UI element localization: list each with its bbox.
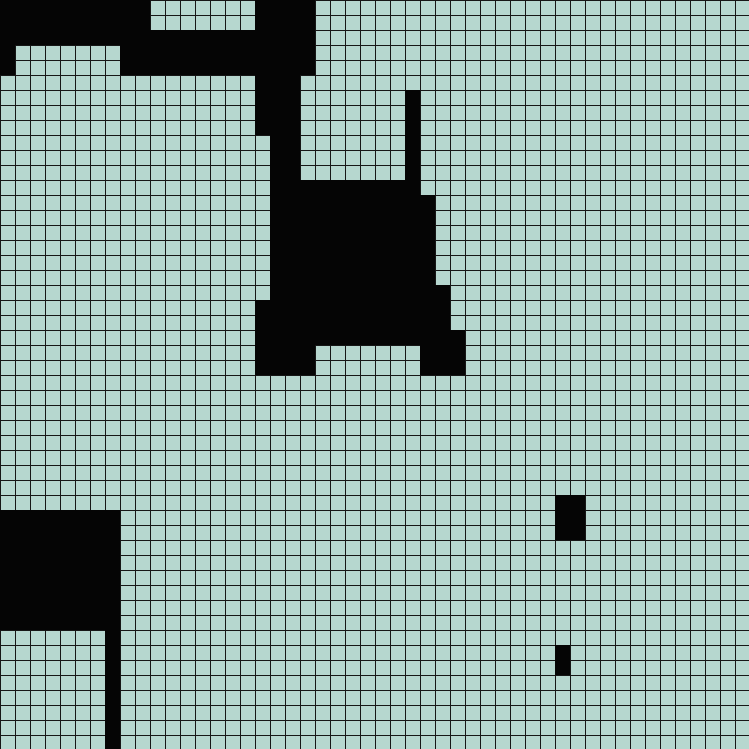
open-tile[interactable] — [540, 300, 555, 315]
filled-tile[interactable] — [0, 15, 15, 30]
open-tile[interactable] — [540, 720, 555, 735]
filled-tile[interactable] — [120, 15, 135, 30]
filled-tile[interactable] — [300, 240, 315, 255]
open-tile[interactable] — [255, 585, 270, 600]
open-tile[interactable] — [705, 360, 720, 375]
open-tile[interactable] — [345, 45, 360, 60]
open-tile[interactable] — [585, 360, 600, 375]
filled-tile[interactable] — [255, 345, 270, 360]
open-tile[interactable] — [435, 75, 450, 90]
open-tile[interactable] — [450, 210, 465, 225]
open-tile[interactable] — [675, 255, 690, 270]
open-tile[interactable] — [315, 15, 330, 30]
open-tile[interactable] — [735, 600, 749, 615]
open-tile[interactable] — [0, 330, 15, 345]
open-tile[interactable] — [210, 645, 225, 660]
open-tile[interactable] — [270, 525, 285, 540]
open-tile[interactable] — [225, 735, 240, 749]
open-tile[interactable] — [180, 495, 195, 510]
open-tile[interactable] — [270, 630, 285, 645]
open-tile[interactable] — [450, 720, 465, 735]
open-tile[interactable] — [45, 480, 60, 495]
open-tile[interactable] — [360, 345, 375, 360]
open-tile[interactable] — [120, 420, 135, 435]
open-tile[interactable] — [420, 615, 435, 630]
open-tile[interactable] — [60, 165, 75, 180]
open-tile[interactable] — [495, 615, 510, 630]
open-tile[interactable] — [465, 495, 480, 510]
open-tile[interactable] — [690, 735, 705, 749]
open-tile[interactable] — [660, 360, 675, 375]
open-tile[interactable] — [225, 525, 240, 540]
open-tile[interactable] — [330, 15, 345, 30]
open-tile[interactable] — [735, 720, 749, 735]
filled-tile[interactable] — [390, 300, 405, 315]
filled-tile[interactable] — [285, 150, 300, 165]
open-tile[interactable] — [570, 285, 585, 300]
open-tile[interactable] — [150, 510, 165, 525]
open-tile[interactable] — [570, 330, 585, 345]
open-tile[interactable] — [375, 525, 390, 540]
filled-tile[interactable] — [315, 330, 330, 345]
open-tile[interactable] — [525, 75, 540, 90]
open-tile[interactable] — [15, 690, 30, 705]
open-tile[interactable] — [240, 495, 255, 510]
filled-tile[interactable] — [300, 0, 315, 15]
open-tile[interactable] — [150, 375, 165, 390]
open-tile[interactable] — [645, 555, 660, 570]
open-tile[interactable] — [270, 660, 285, 675]
open-tile[interactable] — [150, 600, 165, 615]
open-tile[interactable] — [645, 345, 660, 360]
open-tile[interactable] — [540, 90, 555, 105]
open-tile[interactable] — [60, 315, 75, 330]
open-tile[interactable] — [660, 435, 675, 450]
open-tile[interactable] — [705, 75, 720, 90]
filled-tile[interactable] — [150, 45, 165, 60]
filled-tile[interactable] — [30, 0, 45, 15]
open-tile[interactable] — [540, 390, 555, 405]
open-tile[interactable] — [585, 135, 600, 150]
open-tile[interactable] — [405, 540, 420, 555]
open-tile[interactable] — [240, 225, 255, 240]
open-tile[interactable] — [375, 420, 390, 435]
filled-tile[interactable] — [75, 540, 90, 555]
open-tile[interactable] — [450, 390, 465, 405]
open-tile[interactable] — [510, 660, 525, 675]
open-tile[interactable] — [135, 405, 150, 420]
open-tile[interactable] — [735, 390, 749, 405]
open-tile[interactable] — [0, 300, 15, 315]
open-tile[interactable] — [240, 120, 255, 135]
open-tile[interactable] — [255, 270, 270, 285]
open-tile[interactable] — [660, 285, 675, 300]
open-tile[interactable] — [150, 345, 165, 360]
open-tile[interactable] — [690, 675, 705, 690]
open-tile[interactable] — [375, 705, 390, 720]
open-tile[interactable] — [195, 705, 210, 720]
open-tile[interactable] — [240, 180, 255, 195]
open-tile[interactable] — [180, 735, 195, 749]
open-tile[interactable] — [540, 330, 555, 345]
open-tile[interactable] — [345, 135, 360, 150]
open-tile[interactable] — [240, 675, 255, 690]
open-tile[interactable] — [675, 300, 690, 315]
open-tile[interactable] — [300, 585, 315, 600]
filled-tile[interactable] — [315, 210, 330, 225]
filled-tile[interactable] — [270, 330, 285, 345]
open-tile[interactable] — [480, 210, 495, 225]
filled-tile[interactable] — [60, 555, 75, 570]
open-tile[interactable] — [120, 225, 135, 240]
open-tile[interactable] — [480, 435, 495, 450]
filled-tile[interactable] — [285, 120, 300, 135]
open-tile[interactable] — [585, 45, 600, 60]
open-tile[interactable] — [510, 465, 525, 480]
open-tile[interactable] — [240, 570, 255, 585]
filled-tile[interactable] — [75, 15, 90, 30]
filled-tile[interactable] — [270, 255, 285, 270]
open-tile[interactable] — [270, 540, 285, 555]
open-tile[interactable] — [195, 180, 210, 195]
filled-tile[interactable] — [285, 135, 300, 150]
open-tile[interactable] — [420, 555, 435, 570]
open-tile[interactable] — [585, 90, 600, 105]
open-tile[interactable] — [630, 60, 645, 75]
open-tile[interactable] — [285, 420, 300, 435]
open-tile[interactable] — [390, 555, 405, 570]
open-tile[interactable] — [225, 255, 240, 270]
filled-tile[interactable] — [330, 225, 345, 240]
open-tile[interactable] — [705, 465, 720, 480]
open-tile[interactable] — [420, 540, 435, 555]
open-tile[interactable] — [615, 360, 630, 375]
open-tile[interactable] — [525, 705, 540, 720]
open-tile[interactable] — [630, 330, 645, 345]
open-tile[interactable] — [300, 690, 315, 705]
open-tile[interactable] — [45, 240, 60, 255]
open-tile[interactable] — [150, 615, 165, 630]
filled-tile[interactable] — [255, 105, 270, 120]
open-tile[interactable] — [330, 405, 345, 420]
open-tile[interactable] — [495, 300, 510, 315]
open-tile[interactable] — [315, 495, 330, 510]
open-tile[interactable] — [510, 675, 525, 690]
open-tile[interactable] — [570, 645, 585, 660]
open-tile[interactable] — [405, 15, 420, 30]
open-tile[interactable] — [0, 630, 15, 645]
filled-tile[interactable] — [285, 225, 300, 240]
open-tile[interactable] — [615, 420, 630, 435]
open-tile[interactable] — [675, 510, 690, 525]
filled-tile[interactable] — [330, 270, 345, 285]
open-tile[interactable] — [165, 75, 180, 90]
open-tile[interactable] — [600, 0, 615, 15]
open-tile[interactable] — [735, 510, 749, 525]
open-tile[interactable] — [30, 45, 45, 60]
open-tile[interactable] — [165, 240, 180, 255]
open-tile[interactable] — [555, 120, 570, 135]
open-tile[interactable] — [360, 120, 375, 135]
open-tile[interactable] — [45, 675, 60, 690]
open-tile[interactable] — [705, 450, 720, 465]
open-tile[interactable] — [465, 735, 480, 749]
open-tile[interactable] — [495, 435, 510, 450]
open-tile[interactable] — [720, 75, 735, 90]
filled-tile[interactable] — [330, 195, 345, 210]
filled-tile[interactable] — [165, 60, 180, 75]
open-tile[interactable] — [165, 90, 180, 105]
open-tile[interactable] — [630, 555, 645, 570]
open-tile[interactable] — [195, 105, 210, 120]
open-tile[interactable] — [735, 285, 749, 300]
open-tile[interactable] — [735, 195, 749, 210]
open-tile[interactable] — [465, 375, 480, 390]
open-tile[interactable] — [240, 270, 255, 285]
open-tile[interactable] — [420, 390, 435, 405]
open-tile[interactable] — [330, 45, 345, 60]
open-tile[interactable] — [585, 150, 600, 165]
open-tile[interactable] — [285, 495, 300, 510]
open-tile[interactable] — [180, 345, 195, 360]
open-tile[interactable] — [465, 195, 480, 210]
open-tile[interactable] — [75, 165, 90, 180]
open-tile[interactable] — [510, 435, 525, 450]
open-tile[interactable] — [135, 735, 150, 749]
open-tile[interactable] — [450, 315, 465, 330]
open-tile[interactable] — [255, 240, 270, 255]
open-tile[interactable] — [105, 90, 120, 105]
filled-tile[interactable] — [405, 255, 420, 270]
open-tile[interactable] — [570, 345, 585, 360]
filled-tile[interactable] — [180, 60, 195, 75]
open-tile[interactable] — [180, 195, 195, 210]
open-tile[interactable] — [450, 735, 465, 749]
open-tile[interactable] — [420, 570, 435, 585]
open-tile[interactable] — [510, 690, 525, 705]
open-tile[interactable] — [540, 630, 555, 645]
open-tile[interactable] — [525, 600, 540, 615]
open-tile[interactable] — [30, 450, 45, 465]
open-tile[interactable] — [240, 660, 255, 675]
open-tile[interactable] — [420, 45, 435, 60]
open-tile[interactable] — [285, 510, 300, 525]
open-tile[interactable] — [675, 435, 690, 450]
open-tile[interactable] — [735, 540, 749, 555]
open-tile[interactable] — [195, 405, 210, 420]
open-tile[interactable] — [420, 630, 435, 645]
open-tile[interactable] — [645, 75, 660, 90]
open-tile[interactable] — [330, 600, 345, 615]
open-tile[interactable] — [495, 255, 510, 270]
open-tile[interactable] — [195, 165, 210, 180]
filled-tile[interactable] — [300, 195, 315, 210]
open-tile[interactable] — [195, 420, 210, 435]
open-tile[interactable] — [15, 210, 30, 225]
open-tile[interactable] — [90, 45, 105, 60]
open-tile[interactable] — [630, 135, 645, 150]
open-tile[interactable] — [165, 315, 180, 330]
open-tile[interactable] — [315, 705, 330, 720]
filled-tile[interactable] — [315, 195, 330, 210]
open-tile[interactable] — [180, 720, 195, 735]
open-tile[interactable] — [255, 435, 270, 450]
open-tile[interactable] — [510, 75, 525, 90]
open-tile[interactable] — [465, 390, 480, 405]
open-tile[interactable] — [630, 0, 645, 15]
open-tile[interactable] — [615, 450, 630, 465]
open-tile[interactable] — [390, 105, 405, 120]
open-tile[interactable] — [45, 495, 60, 510]
open-tile[interactable] — [165, 210, 180, 225]
filled-tile[interactable] — [570, 495, 585, 510]
open-tile[interactable] — [720, 375, 735, 390]
open-tile[interactable] — [225, 90, 240, 105]
open-tile[interactable] — [555, 435, 570, 450]
open-tile[interactable] — [450, 600, 465, 615]
open-tile[interactable] — [675, 555, 690, 570]
open-tile[interactable] — [315, 0, 330, 15]
open-tile[interactable] — [120, 570, 135, 585]
open-tile[interactable] — [15, 60, 30, 75]
open-tile[interactable] — [525, 630, 540, 645]
open-tile[interactable] — [615, 255, 630, 270]
open-tile[interactable] — [330, 720, 345, 735]
filled-tile[interactable] — [45, 555, 60, 570]
open-tile[interactable] — [0, 150, 15, 165]
open-tile[interactable] — [165, 615, 180, 630]
open-tile[interactable] — [450, 420, 465, 435]
filled-tile[interactable] — [300, 15, 315, 30]
open-tile[interactable] — [675, 390, 690, 405]
open-tile[interactable] — [480, 360, 495, 375]
open-tile[interactable] — [525, 570, 540, 585]
open-tile[interactable] — [555, 315, 570, 330]
open-tile[interactable] — [315, 525, 330, 540]
open-tile[interactable] — [300, 630, 315, 645]
open-tile[interactable] — [510, 0, 525, 15]
filled-tile[interactable] — [105, 705, 120, 720]
open-tile[interactable] — [570, 90, 585, 105]
filled-tile[interactable] — [390, 225, 405, 240]
open-tile[interactable] — [75, 75, 90, 90]
open-tile[interactable] — [705, 105, 720, 120]
filled-tile[interactable] — [360, 285, 375, 300]
open-tile[interactable] — [420, 735, 435, 749]
open-tile[interactable] — [60, 465, 75, 480]
open-tile[interactable] — [375, 150, 390, 165]
open-tile[interactable] — [210, 630, 225, 645]
open-tile[interactable] — [480, 555, 495, 570]
open-tile[interactable] — [345, 705, 360, 720]
open-tile[interactable] — [90, 315, 105, 330]
open-tile[interactable] — [450, 135, 465, 150]
open-tile[interactable] — [90, 435, 105, 450]
open-tile[interactable] — [15, 255, 30, 270]
open-tile[interactable] — [105, 195, 120, 210]
open-tile[interactable] — [105, 255, 120, 270]
open-tile[interactable] — [495, 390, 510, 405]
filled-tile[interactable] — [45, 0, 60, 15]
open-tile[interactable] — [465, 585, 480, 600]
open-tile[interactable] — [465, 615, 480, 630]
open-tile[interactable] — [615, 525, 630, 540]
open-tile[interactable] — [180, 360, 195, 375]
open-tile[interactable] — [600, 60, 615, 75]
open-tile[interactable] — [210, 435, 225, 450]
open-tile[interactable] — [510, 615, 525, 630]
filled-tile[interactable] — [330, 315, 345, 330]
open-tile[interactable] — [360, 645, 375, 660]
open-tile[interactable] — [375, 495, 390, 510]
open-tile[interactable] — [315, 555, 330, 570]
open-tile[interactable] — [405, 690, 420, 705]
open-tile[interactable] — [120, 735, 135, 749]
open-tile[interactable] — [210, 555, 225, 570]
open-tile[interactable] — [330, 705, 345, 720]
open-tile[interactable] — [165, 735, 180, 749]
open-tile[interactable] — [330, 615, 345, 630]
open-tile[interactable] — [60, 360, 75, 375]
open-tile[interactable] — [75, 465, 90, 480]
open-tile[interactable] — [15, 120, 30, 135]
open-tile[interactable] — [630, 480, 645, 495]
open-tile[interactable] — [435, 525, 450, 540]
open-tile[interactable] — [375, 690, 390, 705]
filled-tile[interactable] — [360, 180, 375, 195]
open-tile[interactable] — [630, 90, 645, 105]
open-tile[interactable] — [180, 315, 195, 330]
open-tile[interactable] — [630, 120, 645, 135]
open-tile[interactable] — [90, 210, 105, 225]
open-tile[interactable] — [90, 60, 105, 75]
open-tile[interactable] — [720, 135, 735, 150]
open-tile[interactable] — [390, 60, 405, 75]
open-tile[interactable] — [75, 645, 90, 660]
open-tile[interactable] — [285, 465, 300, 480]
open-tile[interactable] — [705, 15, 720, 30]
open-tile[interactable] — [705, 270, 720, 285]
open-tile[interactable] — [525, 345, 540, 360]
open-tile[interactable] — [675, 420, 690, 435]
open-tile[interactable] — [540, 585, 555, 600]
open-tile[interactable] — [255, 135, 270, 150]
open-tile[interactable] — [465, 45, 480, 60]
open-tile[interactable] — [360, 480, 375, 495]
open-tile[interactable] — [240, 630, 255, 645]
open-tile[interactable] — [615, 0, 630, 15]
open-tile[interactable] — [210, 360, 225, 375]
open-tile[interactable] — [555, 360, 570, 375]
open-tile[interactable] — [510, 540, 525, 555]
open-tile[interactable] — [180, 240, 195, 255]
filled-tile[interactable] — [75, 615, 90, 630]
open-tile[interactable] — [30, 165, 45, 180]
open-tile[interactable] — [675, 15, 690, 30]
open-tile[interactable] — [735, 360, 749, 375]
open-tile[interactable] — [15, 225, 30, 240]
open-tile[interactable] — [15, 495, 30, 510]
open-tile[interactable] — [555, 345, 570, 360]
open-tile[interactable] — [405, 570, 420, 585]
open-tile[interactable] — [510, 375, 525, 390]
open-tile[interactable] — [690, 105, 705, 120]
open-tile[interactable] — [540, 15, 555, 30]
open-tile[interactable] — [720, 300, 735, 315]
open-tile[interactable] — [675, 210, 690, 225]
open-tile[interactable] — [15, 735, 30, 749]
open-tile[interactable] — [210, 180, 225, 195]
